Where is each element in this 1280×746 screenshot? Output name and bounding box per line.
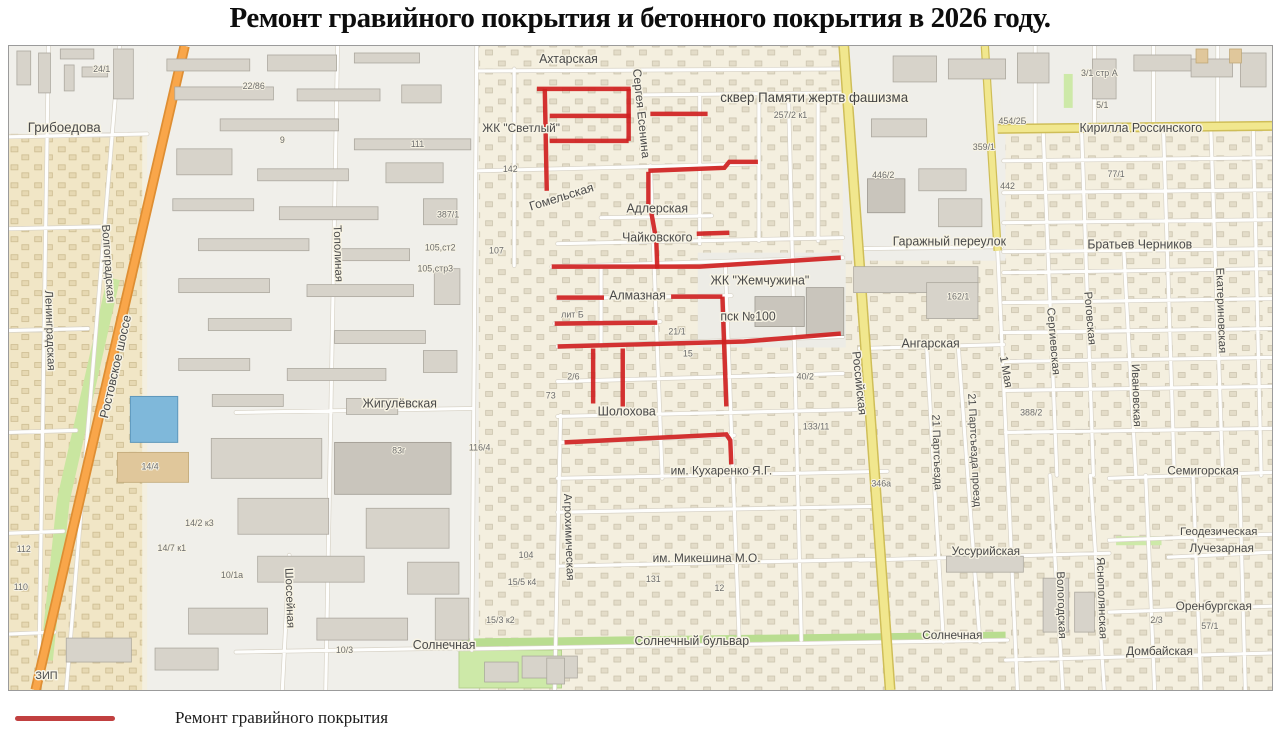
street-label: Грибоедова [28, 120, 101, 135]
building-number: 15/3 к2 [486, 615, 515, 625]
building-number: 14/2 к3 [185, 518, 214, 528]
street-label: ЖК "Светлый" [482, 121, 560, 135]
repair-line [555, 323, 658, 324]
building-number: 83г [392, 445, 405, 455]
area-label: сквер Памяти жертв фашизма [720, 90, 908, 105]
building-number: 110 [14, 582, 28, 592]
building-number: лит Б [561, 310, 584, 320]
building-number: 142 [503, 164, 518, 174]
page-title: Ремонт гравийного покрытия и бетонного п… [0, 2, 1280, 35]
building-number: 9 [280, 135, 285, 145]
street-label: Лучезарная [1189, 541, 1253, 555]
repair-line [545, 89, 547, 191]
street-label: пск №100 [720, 310, 776, 324]
building-number: 3/1 стр А [1081, 68, 1118, 78]
building-number: 107 [489, 246, 504, 256]
street-label: Вологодская [1054, 571, 1068, 639]
building-number: 77/1 [1107, 169, 1124, 179]
page: Ремонт гравийного покрытия и бетонного п… [0, 0, 1280, 746]
legend: Ремонт гравийного покрытия [15, 703, 388, 733]
map: АхтарскаяСергея Есенинасквер Памяти жерт… [8, 45, 1273, 691]
street-label: Кирилла Россинского [1079, 121, 1202, 135]
building-number: 162/1 [947, 292, 969, 302]
building-number: 446/2 [872, 170, 894, 180]
street-label: Тополиная [331, 225, 345, 282]
building-number: 14/4 [141, 461, 158, 471]
street-label: Алмазная [609, 289, 666, 303]
street-label: Ангарская [901, 336, 959, 350]
building-number: 133/11 [803, 421, 830, 431]
street-label: Ивановская [1129, 364, 1143, 427]
legend-label: Ремонт гравийного покрытия [175, 708, 388, 728]
street-label: им. Кухаренко Я.Г. [671, 463, 772, 477]
street-label: Оренбургская [1176, 599, 1252, 613]
street-label: Уссурийская [952, 544, 1021, 558]
street-label: Солнечный бульвар [634, 634, 749, 648]
building-number: 116/4 [469, 442, 491, 452]
street-label: Гаражный переулок [893, 235, 1007, 249]
building-number: 454/2Б [998, 116, 1026, 126]
building-number: 15 [683, 348, 693, 358]
street-label: Ахтарская [539, 52, 598, 66]
repair-line [697, 233, 730, 234]
street-label: Семигорская [1167, 463, 1238, 477]
street-label: ЖК "Жемчужина" [711, 274, 810, 288]
street-label: Шоссейная [282, 568, 296, 628]
building-number: 15/5 к4 [508, 577, 537, 587]
street-label: ЗИП [35, 670, 57, 682]
building-number: 57/1 [1201, 621, 1218, 631]
building-number: 111 [411, 139, 425, 149]
street-label: Солнечная [922, 628, 982, 642]
building-number: 387/1 [437, 210, 459, 220]
building-number: 12 [714, 583, 724, 593]
building-number: 21/1 [668, 327, 685, 337]
building-number: 346а [871, 478, 891, 488]
building-number: 2/3 [1150, 615, 1162, 625]
street-label: Жигулёвская [363, 396, 437, 410]
city-map: АхтарскаяСергея Есенинасквер Памяти жерт… [9, 46, 1272, 690]
building-number: 22/86 [243, 81, 265, 91]
building-number: 257/2 к1 [774, 110, 808, 120]
building-number: 2/6 [567, 371, 579, 381]
building-number: 40/2 [797, 371, 814, 381]
street-label: Шолохова [598, 404, 656, 418]
building-number: 24/1 [93, 64, 110, 74]
building-number: 112 [17, 544, 31, 554]
building-number: 10/3 [336, 645, 353, 655]
street-label: Домбайская [1126, 644, 1193, 658]
building-number: 104 [519, 550, 534, 560]
building-number: 73 [546, 390, 556, 400]
building-number: 359/1 [973, 142, 995, 152]
repair-line-swatch [15, 716, 115, 721]
building-number: 105,стр3 [417, 264, 453, 274]
street-label: Солнечная [413, 638, 476, 652]
street-label: Братьев Черников [1087, 238, 1192, 252]
building-number: 5/1 [1096, 100, 1108, 110]
building-number: 131 [646, 574, 661, 584]
street-label: Чайковского [622, 231, 692, 245]
street-label: Адлерская [626, 202, 688, 216]
building-number: 10/1а [221, 570, 243, 580]
building-number: 105,ст2 [425, 243, 456, 253]
building-number: 14/7 к1 [158, 543, 187, 553]
water-blue-block [130, 396, 177, 442]
building-number: 442 [1000, 181, 1015, 191]
street-label: Геодезическая [1180, 526, 1257, 538]
street-label: им. Микешина М.О. [653, 551, 761, 565]
building-number: 388/2 [1020, 407, 1042, 417]
